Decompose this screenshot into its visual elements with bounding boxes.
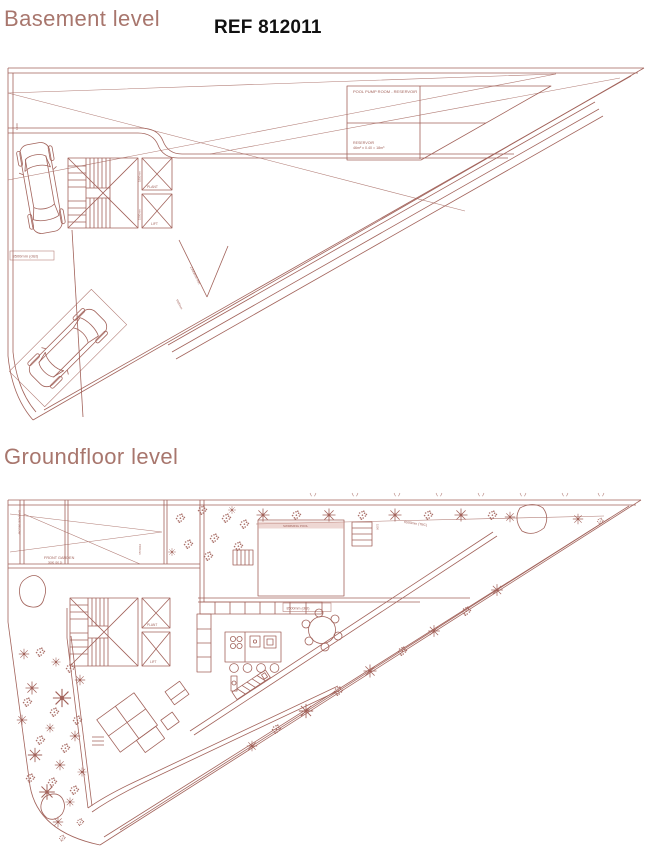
plant-shaft-label: PLANT bbox=[147, 623, 157, 627]
ramp-clearance-note: 2300mm min bbox=[179, 240, 228, 297]
steps-dim-label: 1500 bbox=[376, 524, 380, 530]
boulder-top-right bbox=[517, 505, 547, 534]
glass-facade bbox=[190, 532, 497, 735]
staircase bbox=[68, 158, 138, 228]
shaft-dim-1500: 1500mm bbox=[138, 208, 142, 220]
plant-shaft-label: PLANT bbox=[147, 185, 158, 189]
driveway-ramp bbox=[168, 102, 603, 359]
groundfloor-floorplan: FRONT GARDEN 3080 (50.5) GARAGE BELOW 15… bbox=[0, 490, 651, 858]
plant-shaft: PLANT 1800mm bbox=[138, 158, 173, 190]
front-garden-label: FRONT GARDEN bbox=[44, 556, 75, 560]
kitchen-island bbox=[225, 632, 281, 662]
groundfloor-site-boundary bbox=[8, 500, 641, 845]
staircase bbox=[70, 598, 138, 666]
swimming-pool: SWIMMING POOL bbox=[258, 520, 344, 596]
terrace-edge: 8500mm (dist) bbox=[198, 598, 470, 612]
dim-6500-label: 6500mm (TBC) bbox=[404, 520, 428, 527]
floor-lamp bbox=[231, 676, 237, 691]
lift-shaft-label: LIFT bbox=[151, 222, 158, 226]
parked-car-bottom bbox=[23, 303, 114, 394]
pool-pump-room-label: POOL PUMP ROOM - RESERVOIR bbox=[353, 89, 417, 94]
bay-dim-label: 5500mm bbox=[175, 299, 184, 311]
basement-survey-lines bbox=[8, 74, 620, 211]
front-garden-sub-label: 3080 (50.5) bbox=[48, 561, 62, 565]
floorplan-page: Basement level REF 812011 Groundfloor le… bbox=[0, 0, 651, 858]
groundfloor-level-title: Groundfloor level bbox=[4, 444, 178, 470]
garage-below-label: GARAGE BELOW bbox=[18, 510, 22, 535]
dim-8500-label: 8500mm (dist) bbox=[13, 254, 39, 259]
lift-shaft-label: LIFT bbox=[150, 660, 157, 664]
sofa-sectional bbox=[97, 681, 189, 764]
basement-level-title: Basement level bbox=[4, 6, 160, 32]
basement-site-boundary bbox=[8, 68, 644, 420]
lift-shaft: LIFT 1500mm bbox=[138, 194, 173, 228]
kitchen bbox=[197, 602, 322, 672]
front-garden: FRONT GARDEN 3080 (50.5) GARAGE BELOW 15… bbox=[8, 500, 204, 602]
fireplace-unit bbox=[232, 670, 270, 700]
reservoir-calc-label: 46m² x 0.40 = 18m³ bbox=[353, 146, 385, 150]
lift-shaft: LIFT bbox=[142, 632, 170, 666]
ottoman bbox=[161, 712, 179, 730]
pool-steps-left bbox=[233, 550, 253, 565]
armchair bbox=[165, 681, 189, 705]
boundary-ticks bbox=[310, 493, 604, 496]
basement-floorplan: POOL PUMP ROOM - RESERVOIR RESERVOIR 46m… bbox=[0, 60, 651, 435]
parked-car-top bbox=[14, 140, 67, 235]
parking-bay bbox=[9, 289, 126, 406]
basement-garage-wall bbox=[8, 128, 514, 417]
plant-shaft: PLANT bbox=[142, 598, 170, 628]
pool-steps-right: 1500 bbox=[352, 522, 380, 546]
swimming-pool-label: SWIMMING POOL bbox=[283, 524, 308, 528]
dimension-8500: 8500mm (dist) bbox=[10, 251, 54, 260]
reservoir-label: RESERVOIR bbox=[353, 141, 375, 145]
shaft-dim-1800: 1800mm bbox=[138, 170, 142, 182]
edge-dim-label: 1500 bbox=[15, 123, 19, 130]
dim-1500-label: 1500mm bbox=[138, 544, 142, 556]
ref-number: REF 812011 bbox=[214, 17, 322, 39]
ramp-note-label: 2300mm min bbox=[189, 266, 201, 285]
bar-stools bbox=[230, 664, 279, 673]
pool-pump-room: POOL PUMP ROOM - RESERVOIR RESERVOIR 46m… bbox=[347, 86, 551, 160]
